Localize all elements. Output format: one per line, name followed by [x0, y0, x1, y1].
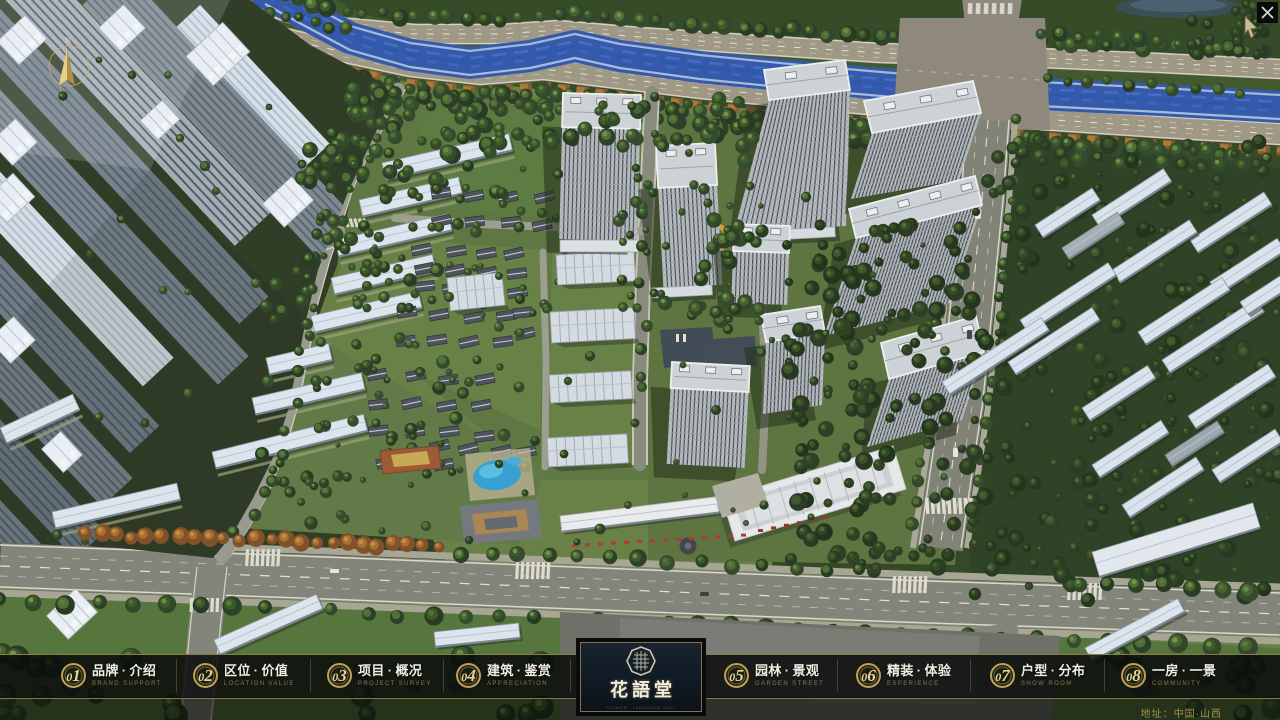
- svg-text:N: N: [65, 36, 71, 45]
